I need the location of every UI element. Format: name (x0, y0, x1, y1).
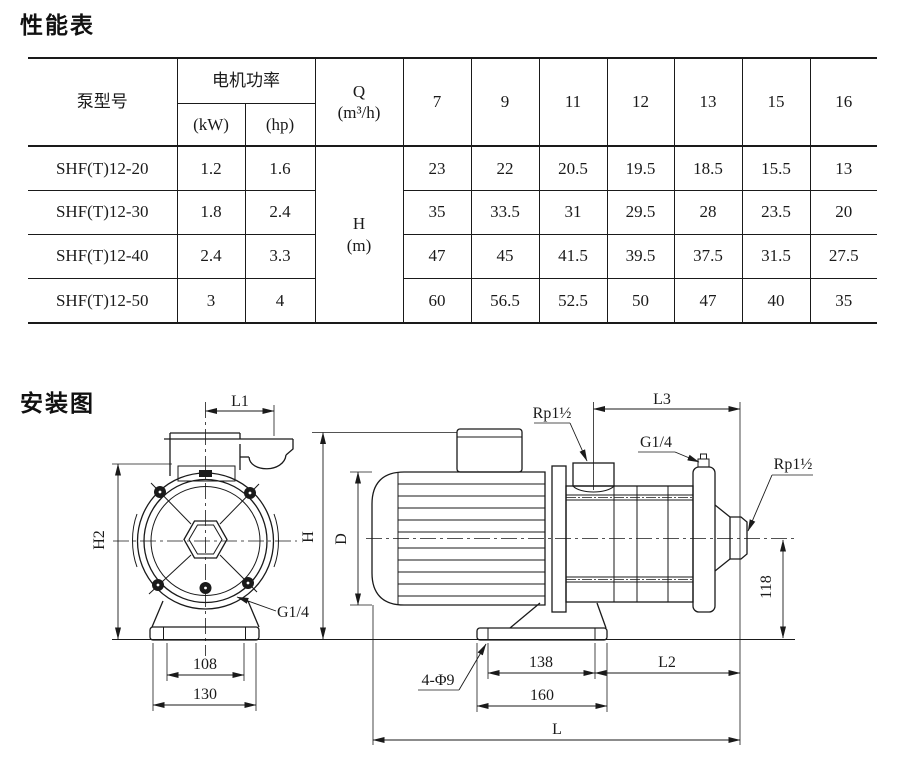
col-header-kw: (kW) (177, 103, 245, 146)
dim-label-d: D (333, 533, 350, 545)
table-row: SHF(T)12-50 3 4 60 56.5 52.5 50 47 40 35 (28, 278, 877, 323)
hp-cell: 3.3 (245, 234, 315, 278)
head-cell: 27.5 (810, 234, 877, 278)
hp-cell: 4 (245, 278, 315, 323)
head-cell: 45 (471, 234, 539, 278)
head-cell: 37.5 (674, 234, 742, 278)
dim-label-108: 108 (193, 656, 217, 673)
head-cell: 23 (403, 146, 471, 190)
col-header-q11: 11 (539, 58, 607, 146)
head-cell: 15.5 (742, 146, 810, 190)
head-cell: 56.5 (471, 278, 539, 323)
front-view-dimensions: L1 H2 G1/4 108 130 (91, 393, 309, 711)
dim-label-rp-inlet: Rp1½ (533, 405, 572, 422)
table-row: SHF(T)12-20 1.2 1.6 H (m) 23 22 20.5 19.… (28, 146, 877, 190)
col-header-q15: 15 (742, 58, 810, 146)
head-cell: 29.5 (607, 190, 674, 234)
performance-table-title: 性能表 (20, 6, 95, 40)
dim-label-h2: H2 (91, 530, 108, 550)
dim-label-l2: L2 (658, 654, 676, 671)
head-cell: 23.5 (742, 190, 810, 234)
table-row: SHF(T)12-30 1.8 2.4 35 33.5 31 29.5 28 2… (28, 190, 877, 234)
hp-cell: 2.4 (245, 190, 315, 234)
head-cell: 22 (471, 146, 539, 190)
performance-table: 泵型号 电机功率 Q (m³/h) 7 9 11 12 13 15 16 (kW… (28, 57, 877, 324)
head-cell: 33.5 (471, 190, 539, 234)
col-header-q13: 13 (674, 58, 742, 146)
head-cell: 39.5 (607, 234, 674, 278)
head-unit-cell: H (m) (315, 146, 403, 323)
head-cell: 19.5 (607, 146, 674, 190)
head-cell: 18.5 (674, 146, 742, 190)
dim-label-130: 130 (193, 686, 217, 703)
head-cell: 28 (674, 190, 742, 234)
dim-label-holes: 4-Φ9 (421, 672, 454, 689)
head-cell: 41.5 (539, 234, 607, 278)
model-cell: SHF(T)12-40 (28, 234, 177, 278)
dim-label-g14-front: G1/4 (277, 604, 309, 621)
col-header-model: 泵型号 (28, 58, 177, 146)
overall-height-dimension: H (300, 433, 457, 640)
hp-cell: 1.6 (245, 146, 315, 190)
head-cell: 52.5 (539, 278, 607, 323)
head-cell: 35 (810, 278, 877, 323)
dim-label-l3: L3 (653, 391, 671, 408)
dim-label-h: H (300, 531, 317, 543)
head-cell: 47 (403, 234, 471, 278)
model-cell: SHF(T)12-30 (28, 190, 177, 234)
dim-label-rp-outlet: Rp1½ (774, 456, 813, 473)
datasheet-page: 性能表 泵型号 电机功率 Q (m³/h) 7 9 11 12 13 15 16 (0, 0, 900, 767)
head-cell: 40 (742, 278, 810, 323)
side-view-dimensions: L3 Rp1½ G1/4 Rp1½ D 118 4-Φ9 (333, 391, 813, 745)
dim-label-160: 160 (530, 687, 554, 704)
head-cell: 31.5 (742, 234, 810, 278)
col-header-flow: Q (m³/h) (315, 58, 403, 146)
col-header-q12: 12 (607, 58, 674, 146)
dim-label-g14-side: G1/4 (640, 434, 672, 451)
kw-cell: 1.8 (177, 190, 245, 234)
head-cell: 35 (403, 190, 471, 234)
head-cell: 60 (403, 278, 471, 323)
col-header-q7: 7 (403, 58, 471, 146)
dim-label-l: L (552, 721, 562, 738)
dim-label-l1: L1 (231, 393, 249, 410)
model-cell: SHF(T)12-50 (28, 278, 177, 323)
installation-drawing: L1 H2 G1/4 108 130 H (0, 387, 900, 767)
col-header-q9: 9 (471, 58, 539, 146)
head-cell: 20 (810, 190, 877, 234)
table-row: SHF(T)12-40 2.4 3.3 47 45 41.5 39.5 37.5… (28, 234, 877, 278)
kw-cell: 2.4 (177, 234, 245, 278)
col-header-motor-power: 电机功率 (177, 58, 315, 103)
dim-label-118: 118 (758, 575, 775, 598)
head-cell: 20.5 (539, 146, 607, 190)
col-header-hp: (hp) (245, 103, 315, 146)
head-cell: 13 (810, 146, 877, 190)
model-cell: SHF(T)12-20 (28, 146, 177, 190)
head-cell: 50 (607, 278, 674, 323)
head-cell: 31 (539, 190, 607, 234)
pump-front-view (113, 402, 297, 656)
pump-side-view (366, 429, 795, 640)
dim-label-138: 138 (529, 654, 553, 671)
kw-cell: 1.2 (177, 146, 245, 190)
kw-cell: 3 (177, 278, 245, 323)
head-cell: 47 (674, 278, 742, 323)
col-header-q16: 16 (810, 58, 877, 146)
motor-fins (398, 484, 545, 596)
